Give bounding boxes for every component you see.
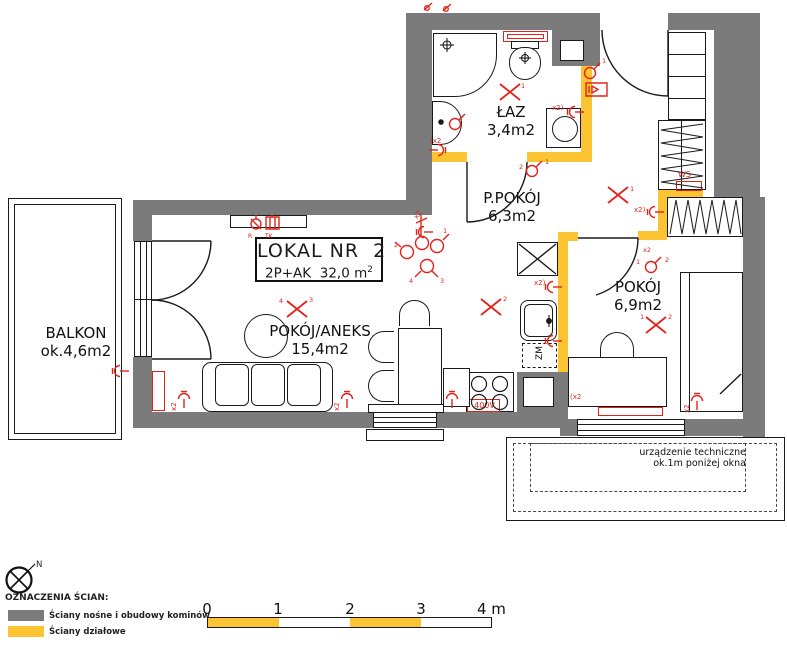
- room-label-pokoj: POKÓJ 6,9m2: [582, 278, 694, 314]
- room-area: 15,4m2: [264, 340, 376, 358]
- switch-number: 1: [636, 258, 640, 266]
- room-area: 6,3m2: [452, 207, 572, 225]
- scale-end: 4 m: [477, 600, 511, 618]
- dishwasher-label: ZM: [535, 339, 545, 367]
- room-area: 3,4m2: [461, 121, 561, 139]
- shelf-line: [668, 76, 706, 77]
- pwall-bath-right: [581, 66, 592, 162]
- socket-count: x2: [170, 402, 178, 411]
- wall-bottom-bed-b: [685, 419, 765, 436]
- wardrobe-hall-rail: [681, 120, 682, 190]
- switch-number: 1: [443, 227, 447, 235]
- toilet-bowl: [509, 47, 541, 80]
- balcony-inner-line: [14, 204, 116, 434]
- light-count: 4: [279, 297, 283, 305]
- switch-icon: [527, 161, 543, 177]
- scale-tick: 2: [342, 600, 358, 618]
- stove-power-label: 400V: [468, 401, 501, 410]
- pwall-wardrobe-left: [658, 198, 667, 232]
- radiator-bedroom: [598, 407, 663, 416]
- socket-count: x2: [643, 246, 651, 254]
- kitchen-shaft: [523, 377, 554, 407]
- tv-outlet-label: R: [248, 233, 252, 240]
- window-main: [373, 412, 437, 428]
- wall-bottom-bed-a: [560, 419, 577, 436]
- tech-note-line1: urządzenie techniczne: [598, 447, 746, 458]
- towel-radiator-inner: [507, 34, 544, 39]
- title-line1: LOKAL NR 2: [257, 240, 381, 262]
- room-name: BALKON: [20, 324, 132, 342]
- room-area: 6,9m2: [582, 296, 694, 314]
- scale-tick: 0: [199, 600, 215, 618]
- counter-under-window: [368, 404, 444, 413]
- dining-chair-left: [368, 370, 394, 402]
- wardrobe-bedroom: [667, 197, 743, 237]
- bath-sink: [432, 101, 462, 145]
- socket-count: x2: [333, 402, 341, 411]
- tech-note: urządzenie techniczne ok.1m poniżej okna: [598, 447, 746, 469]
- stove-power-box: 400V: [467, 399, 500, 412]
- ceiling-light-icon: [481, 299, 501, 315]
- desk-chair: [600, 332, 634, 357]
- pwall-bed-top-right: [638, 231, 667, 240]
- legend-swatch-partition: [8, 626, 44, 637]
- wall-left-main-a: [133, 200, 152, 241]
- wall-kitchen-bed: [558, 372, 568, 419]
- ceiling-light-icon: [287, 301, 307, 317]
- switch-number: 2: [394, 241, 398, 249]
- ws-box: [676, 181, 702, 191]
- switch-number: 3: [440, 277, 444, 285]
- scale-segment: [350, 618, 421, 627]
- desk: [568, 357, 667, 407]
- tech-note-line2: ok.1m poniżej okna: [598, 458, 746, 469]
- dining-chair-top: [399, 300, 430, 326]
- ws-label: WS: [678, 171, 691, 178]
- socket-count: x2): [534, 279, 546, 287]
- radiator-main: [152, 371, 165, 411]
- room-label-laz: ŁAZ 3,4m2: [461, 103, 561, 139]
- title-box: LOKAL NR 2 2P+AK 32,0 m2: [255, 237, 383, 282]
- light-count: 3: [309, 296, 313, 304]
- wall-top-main: [133, 200, 417, 215]
- wall-top-bath: [406, 13, 600, 30]
- counter-right: [443, 368, 470, 407]
- kitchen-sink-basin: [524, 304, 553, 337]
- sofa-cushion: [287, 364, 321, 406]
- socket-count: x2): [634, 206, 646, 214]
- wardrobe-hall: [658, 120, 706, 190]
- sofa-cushion: [251, 364, 285, 406]
- socket-icon: [179, 392, 190, 409]
- room-label-aneks: POKÓJ/ANEKS 15,4m2: [264, 322, 376, 358]
- entry-door-arc: [602, 30, 668, 96]
- wall-bottom-main-b: [437, 412, 560, 428]
- fridge-box: [517, 242, 558, 276]
- pwall-bath-bottom-right: [527, 152, 592, 162]
- light-count: 1: [630, 185, 634, 193]
- room-name: POKÓJ/ANEKS: [264, 322, 376, 340]
- switch-number: 4: [409, 277, 413, 285]
- room-area: ok.4,6m2: [20, 342, 132, 360]
- wall-bottom-main-a: [133, 412, 373, 428]
- balcony-frame-line: [134, 299, 152, 300]
- legend-swatch-structural: [8, 610, 44, 621]
- sofa-cushion: [215, 364, 249, 406]
- window-main-line: [373, 422, 437, 423]
- floor-plan: urządzenie techniczne ok.1m poniżej okna…: [0, 0, 787, 649]
- shelf-line: [668, 98, 706, 99]
- switch-number: 1: [602, 57, 606, 65]
- switch-icon: [646, 257, 662, 273]
- dishwasher-box: ZM: [522, 343, 557, 368]
- scale-tick: 1: [270, 600, 286, 618]
- wall-right-upper: [714, 30, 760, 197]
- scale-segment: [421, 618, 490, 627]
- wall-right-lower: [743, 197, 765, 437]
- room-label-balkon: BALKON ok.4,6m2: [20, 324, 132, 360]
- wall-top-entry-right: [668, 13, 760, 30]
- tv-shelf: [230, 215, 307, 228]
- window-bed-line: [577, 424, 685, 425]
- room-name: ŁAZ: [461, 103, 561, 121]
- wall-mark-icon: [424, 3, 451, 11]
- wall-left-upper: [406, 13, 432, 215]
- light-count: 1: [521, 82, 525, 90]
- window-main-sill: [366, 429, 444, 441]
- socket-icon: [417, 227, 434, 238]
- scale-segment: [208, 618, 279, 627]
- legend-item-structural: Ściany nośne i obudowy kominów: [49, 611, 210, 621]
- light-count: 2: [503, 295, 507, 303]
- scale-tick: 3: [413, 600, 429, 618]
- scale-segment: [279, 618, 350, 627]
- window-bed: [577, 419, 685, 436]
- light-count: 2: [668, 313, 672, 321]
- legend-heading: OZNACZENIA ŚCIAN:: [5, 593, 108, 603]
- pwall-kitchen: [558, 232, 568, 372]
- pwall-bath-bottom-left: [432, 152, 467, 162]
- room-name: P.POKÓJ: [452, 189, 572, 207]
- ceiling-light-icon: [608, 187, 628, 203]
- socket-icon: [342, 392, 353, 409]
- shower-tray: [433, 33, 497, 97]
- ceiling-light-icon: [500, 84, 520, 100]
- switch-number: 2: [519, 163, 523, 171]
- balcony-door-arcs: [152, 241, 211, 359]
- room-label-ppokoj: P.POKÓJ 6,3m2: [452, 189, 572, 225]
- room-name: POKÓJ: [582, 278, 694, 296]
- light-count: 1: [640, 313, 644, 321]
- switch-cluster-icon: [395, 215, 449, 277]
- legend-item-partition: Ściany działowe: [49, 627, 126, 637]
- north-label: N: [36, 560, 42, 570]
- scale-bar: [207, 617, 492, 628]
- switch-number: 2: [665, 256, 669, 264]
- title-line2: 2P+AK 32,0 m2: [257, 262, 381, 282]
- bath-shaft: [560, 40, 584, 61]
- dining-table: [398, 328, 442, 407]
- pwall-bed-top-left: [568, 232, 578, 241]
- window-bed-line: [577, 430, 685, 431]
- shelf-line: [668, 54, 706, 55]
- ceiling-light-icon: [646, 317, 666, 333]
- window-main-line: [373, 417, 437, 418]
